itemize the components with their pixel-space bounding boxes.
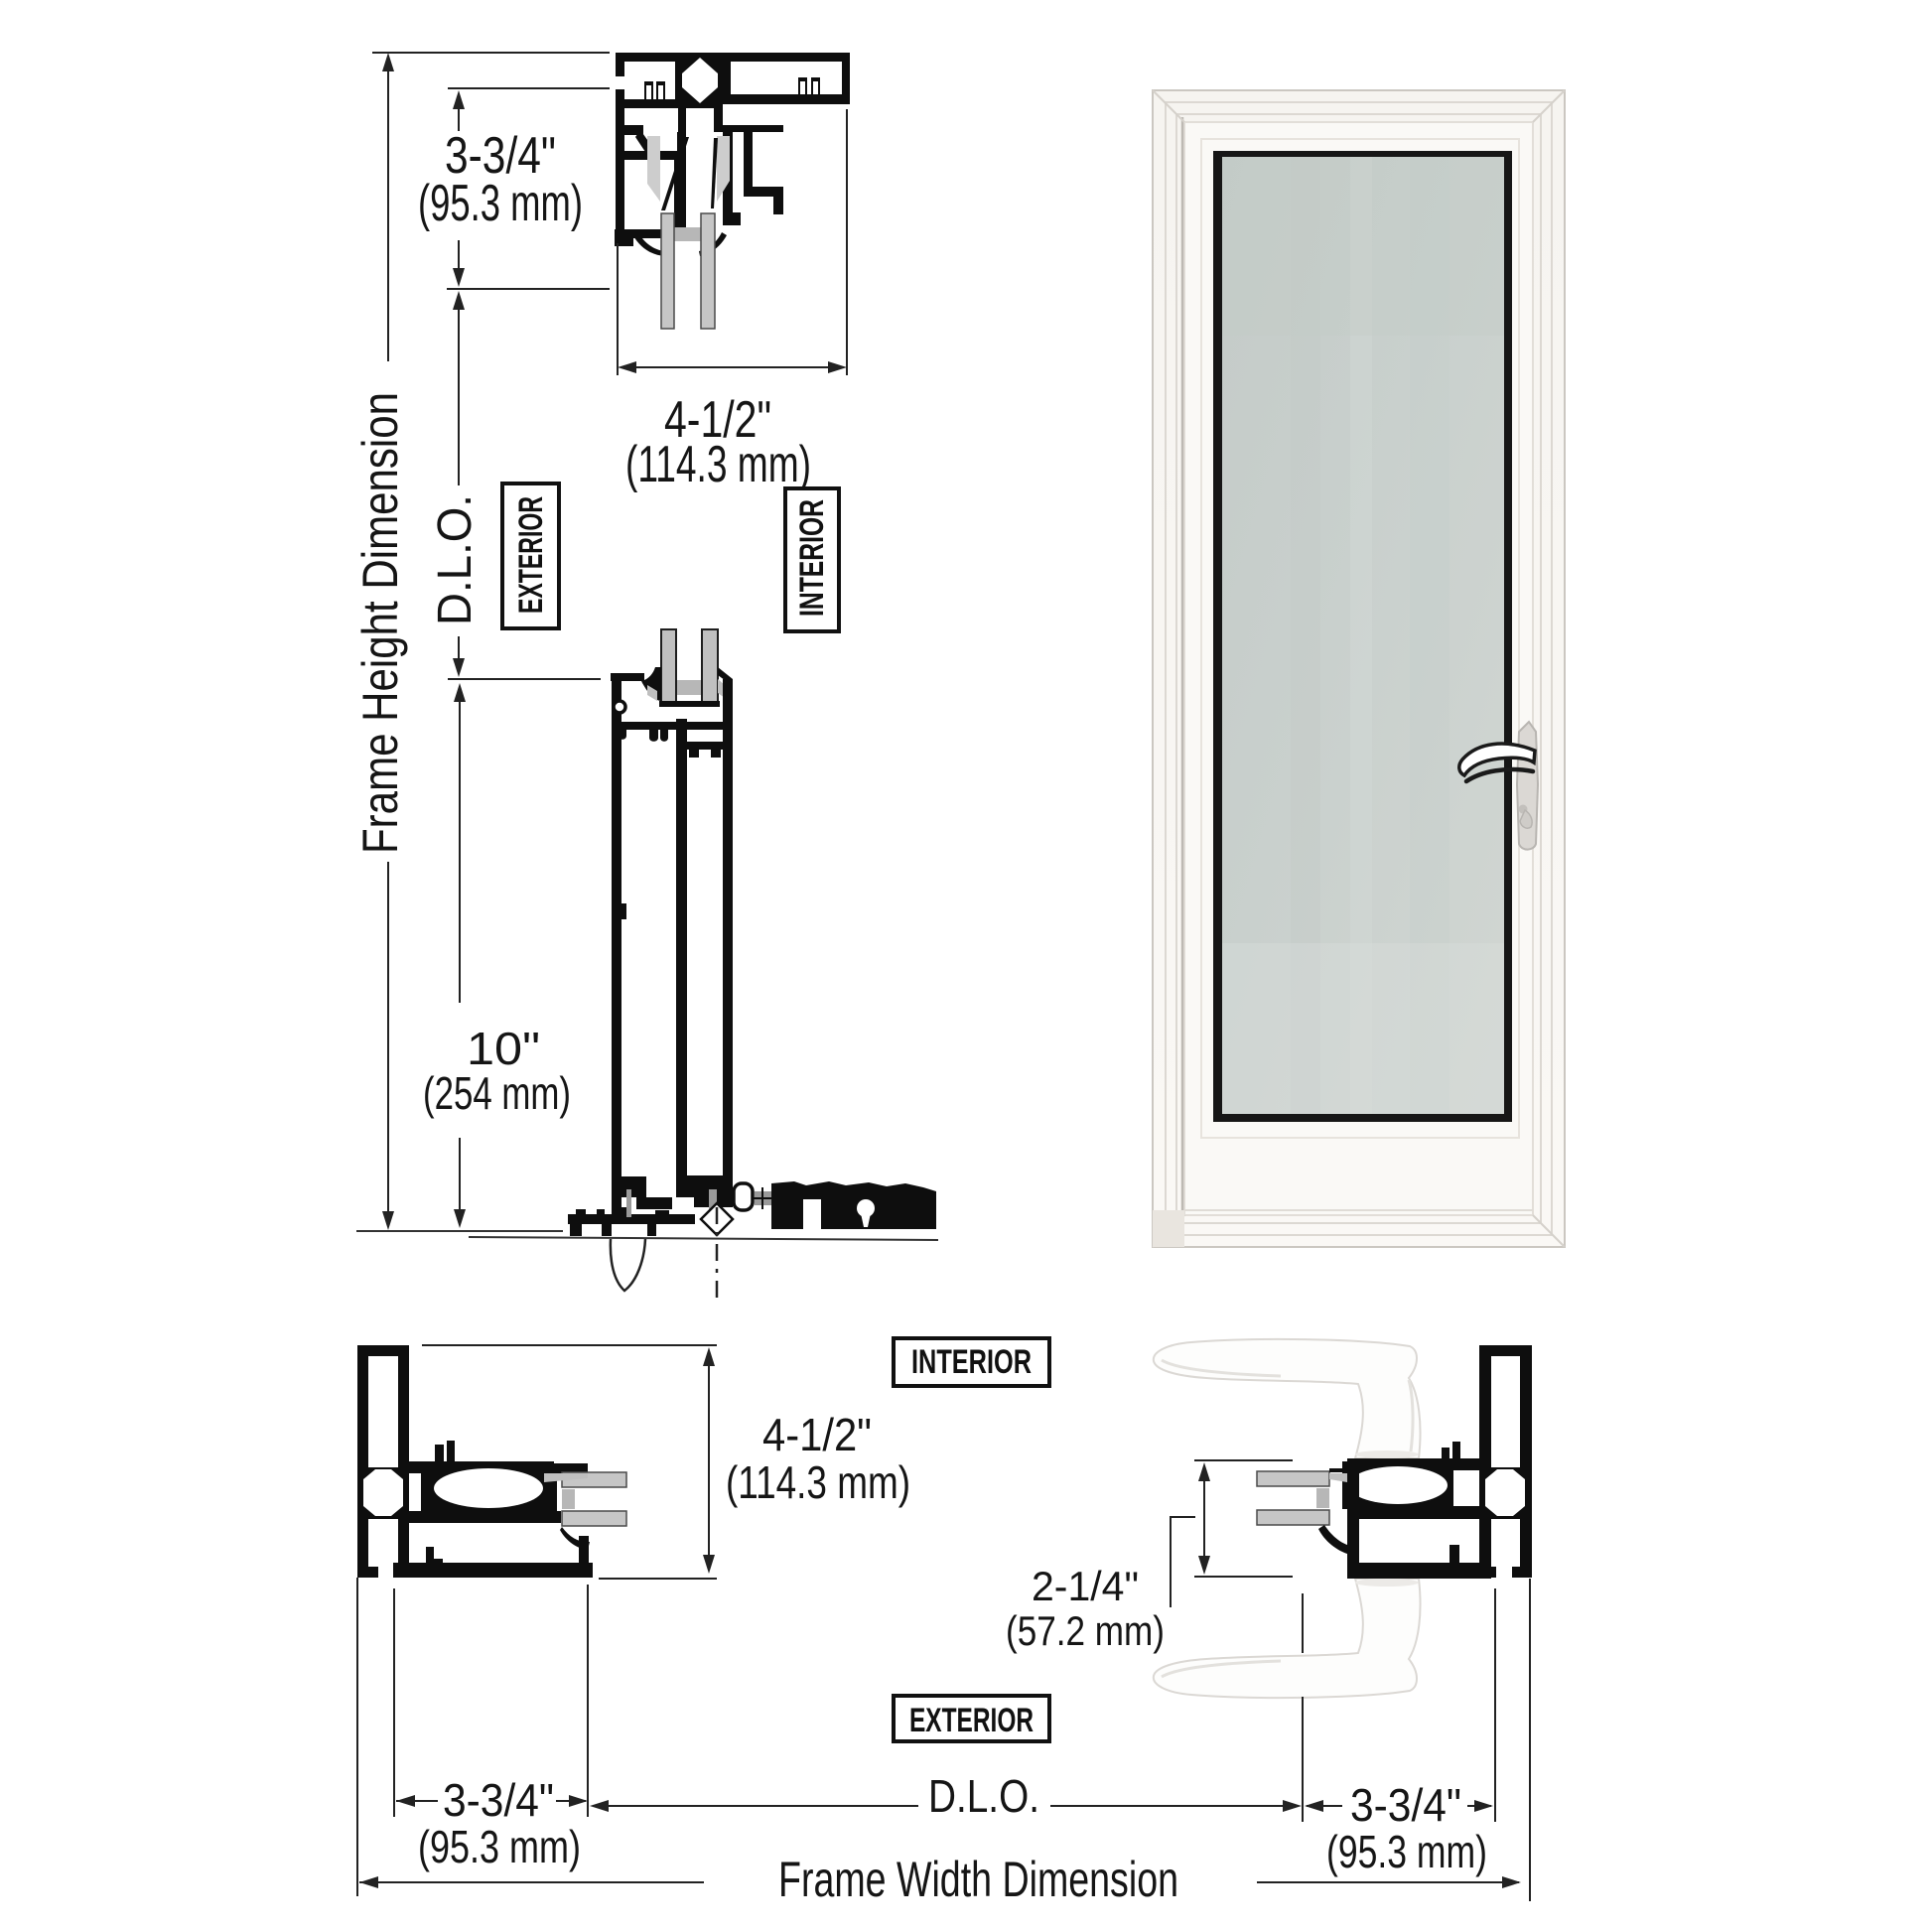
svg-text:INTERIOR: INTERIOR [911,1343,1032,1381]
svg-text:D.L.O.: D.L.O. [928,1770,1039,1822]
svg-text:D.L.O.: D.L.O. [429,494,482,625]
svg-text:(254 mm): (254 mm) [423,1067,571,1119]
svg-text:(114.3 mm): (114.3 mm) [726,1456,910,1508]
svg-text:3-3/4": 3-3/4" [1350,1779,1461,1831]
svg-text:(57.2 mm): (57.2 mm) [1006,1607,1165,1654]
svg-text:2-1/4": 2-1/4" [1032,1563,1139,1609]
svg-text:Frame Width Dimension: Frame Width Dimension [778,1852,1178,1907]
svg-text:INTERIOR: INTERIOR [793,499,831,617]
svg-text:Frame Height Dimension: Frame Height Dimension [352,392,408,854]
svg-text:3-3/4": 3-3/4" [443,1774,554,1826]
svg-text:EXTERIOR: EXTERIOR [512,496,550,614]
svg-text:(114.3 mm): (114.3 mm) [625,436,811,493]
svg-text:(95.3 mm): (95.3 mm) [418,175,583,232]
svg-text:(95.3 mm): (95.3 mm) [1326,1826,1487,1877]
svg-text:EXTERIOR: EXTERIOR [909,1702,1034,1739]
svg-text:4-1/2": 4-1/2" [762,1409,872,1460]
svg-text:(95.3 mm): (95.3 mm) [418,1821,581,1872]
